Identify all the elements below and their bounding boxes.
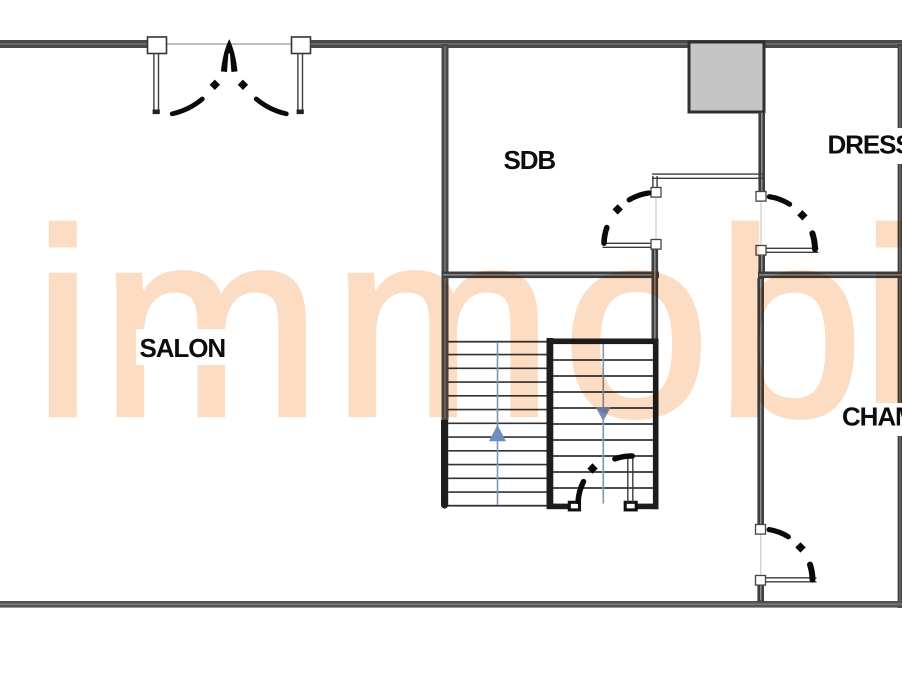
svg-text:DRESSING: DRESSING [828, 130, 902, 160]
svg-text:SALON: SALON [140, 333, 226, 363]
svg-text:SDB: SDB [504, 145, 556, 175]
svg-text:CHAMBRE: CHAMBRE [842, 402, 902, 432]
